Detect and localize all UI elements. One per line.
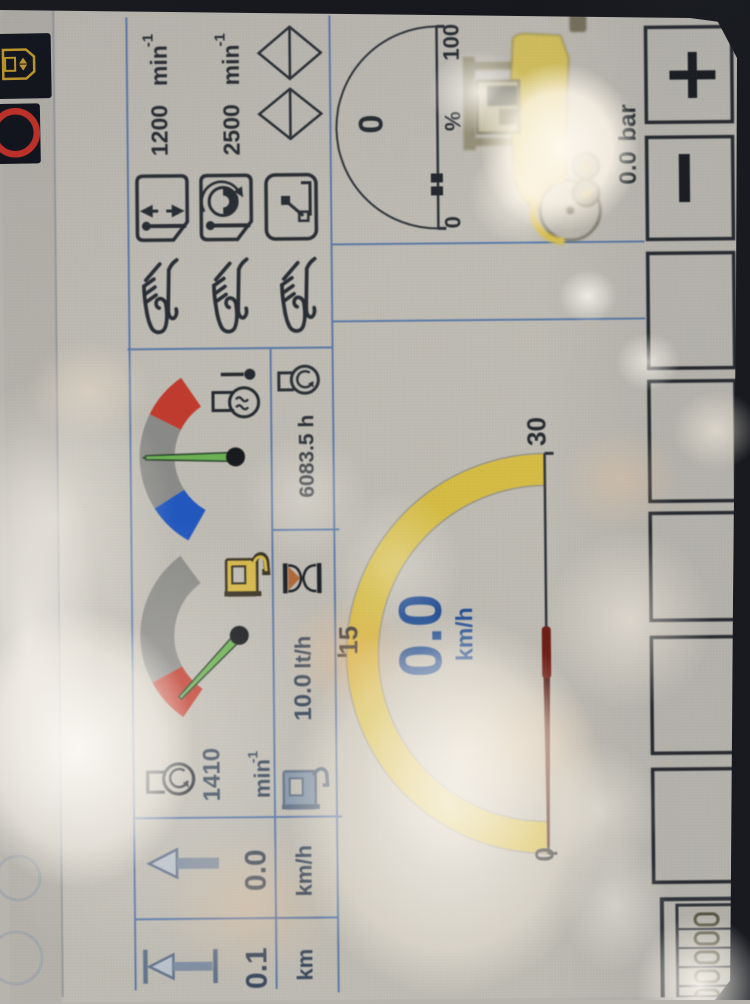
svg-text:0: 0 [529,847,559,862]
svg-text:0: 0 [352,114,390,133]
svg-text:%: % [440,111,465,131]
svg-text:km/h: km/h [291,845,316,897]
svg-text:1200: 1200 [146,105,172,156]
svg-text:15: 15 [333,626,363,655]
svg-text:6083.5 h: 6083.5 h [295,415,319,498]
svg-text:100: 100 [438,24,463,61]
svg-text:0: 0 [440,216,465,228]
svg-text:-1: -1 [140,34,157,48]
svg-text:0.0: 0.0 [239,849,272,891]
svg-text:km/h: km/h [451,607,478,661]
svg-text:min: min [218,44,244,85]
svg-text:km: km [292,949,317,981]
svg-text:-1: -1 [244,750,260,763]
svg-text:30: 30 [521,417,551,446]
svg-text:min: min [146,45,172,86]
svg-text:0.1: 0.1 [240,947,273,989]
svg-text:min: min [249,759,274,798]
svg-text:1410: 1410 [198,748,226,802]
svg-text:0.0: 0.0 [387,594,455,678]
svg-text:lt/h: lt/h [290,636,315,669]
svg-text:bar: bar [614,104,641,142]
svg-text:0.0: 0.0 [615,151,642,185]
svg-text:2500: 2500 [218,104,244,155]
svg-text:-1: -1 [212,33,229,47]
svg-text:10.0: 10.0 [290,674,317,721]
